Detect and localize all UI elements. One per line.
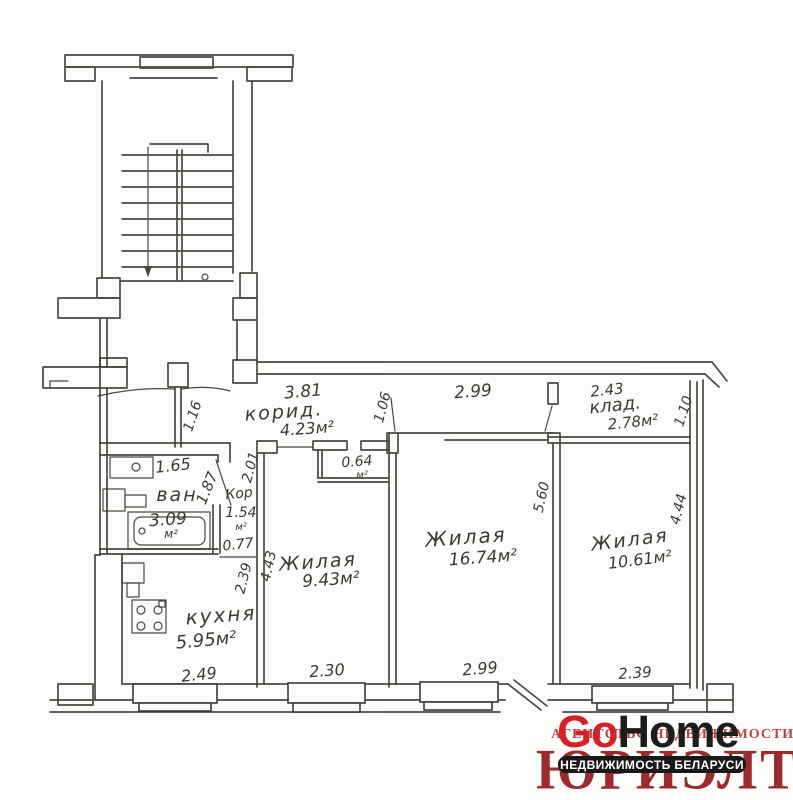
door-swing-left — [98, 389, 174, 396]
kitchen-window — [133, 684, 217, 703]
bathroom-area-unit: м² — [164, 527, 178, 541]
corridor-depth-dim: 1.06 — [371, 390, 395, 424]
bathroom-depth-dim: 1.87 — [192, 469, 221, 507]
entry-door-jamb — [168, 363, 188, 387]
pantry-depth-dim: 1.10 — [672, 394, 697, 429]
door-swing-right — [182, 387, 230, 391]
corridor-area: 4.23м² — [279, 417, 335, 440]
entry-area — [43, 358, 230, 447]
stove-icon — [132, 600, 166, 633]
room-c-depth-dim: 4.44 — [667, 492, 690, 526]
sink-icon — [110, 457, 153, 478]
gohome-logo: GoHome — [557, 706, 739, 758]
hall-area: 1.54 — [225, 505, 256, 521]
corridor-width-dim: 3.81 — [283, 380, 322, 403]
room-b-width-dim: 2.99 — [453, 381, 492, 404]
labels: корид. 4.23м² 3.81 1.06 1.16 клад. 2.78м… — [148, 379, 696, 686]
hall-width-dim: 0.77 — [222, 535, 255, 554]
closet-area-unit: м² — [356, 470, 368, 481]
floor-plan-page: корид. 4.23м² 3.81 1.06 1.16 клад. 2.78м… — [0, 0, 793, 800]
agency-banner-text: НЕДВИЖИМОСТЬ БЕЛАРУСИ — [560, 758, 744, 772]
room-b-window-dim: 2.99 — [461, 657, 498, 679]
kitchen-name: кухня — [185, 601, 257, 630]
room-a-area: 9.43м² — [302, 568, 361, 592]
pantry-door-leaf — [545, 406, 552, 431]
hall-depth-dim: 2.01 — [239, 450, 263, 484]
entry-door-leaf — [175, 387, 181, 447]
gohome-logo-go: Go — [557, 706, 618, 757]
staircase — [58, 55, 293, 366]
room-b-depth-dim: 5.60 — [531, 480, 554, 514]
room-a-window — [288, 683, 365, 703]
stairs-down-arrow — [144, 147, 152, 277]
toilet-icon — [103, 489, 146, 511]
floor-plan-drawing: корид. 4.23м² 3.81 1.06 1.16 клад. 2.78м… — [0, 0, 793, 800]
room-b-window — [420, 682, 498, 702]
gohome-logo-home: Home — [618, 706, 739, 757]
agency-banner: НЕДВИЖИМОСТЬ БЕЛАРУСИ — [558, 756, 746, 773]
hall-name: Кор — [225, 485, 254, 504]
bathroom-width-dim: 1.65 — [154, 454, 191, 477]
kitchen-window-dim: 2.49 — [180, 663, 217, 686]
room-b-area: 16.74м² — [448, 546, 518, 571]
hall-area-unit: м² — [235, 522, 247, 533]
kitchen-area: 5.95м² — [175, 627, 237, 653]
room-c-window-dim: 2.39 — [618, 663, 653, 683]
kitchen-depth-dim: 2.39 — [232, 561, 255, 595]
balcony-door-leaf — [508, 680, 547, 710]
room-c-window — [592, 686, 673, 703]
closet-area: 0.64 — [341, 453, 373, 471]
entry-door-dim: 1.16 — [181, 399, 206, 434]
bathroom-name: ван — [156, 484, 197, 506]
room-a-depth-dim: 4.43 — [258, 549, 280, 583]
room-a-window-dim: 2.30 — [309, 660, 346, 681]
pantry-width-dim: 2.43 — [589, 379, 624, 400]
kitchen-sink-icon — [122, 563, 144, 597]
